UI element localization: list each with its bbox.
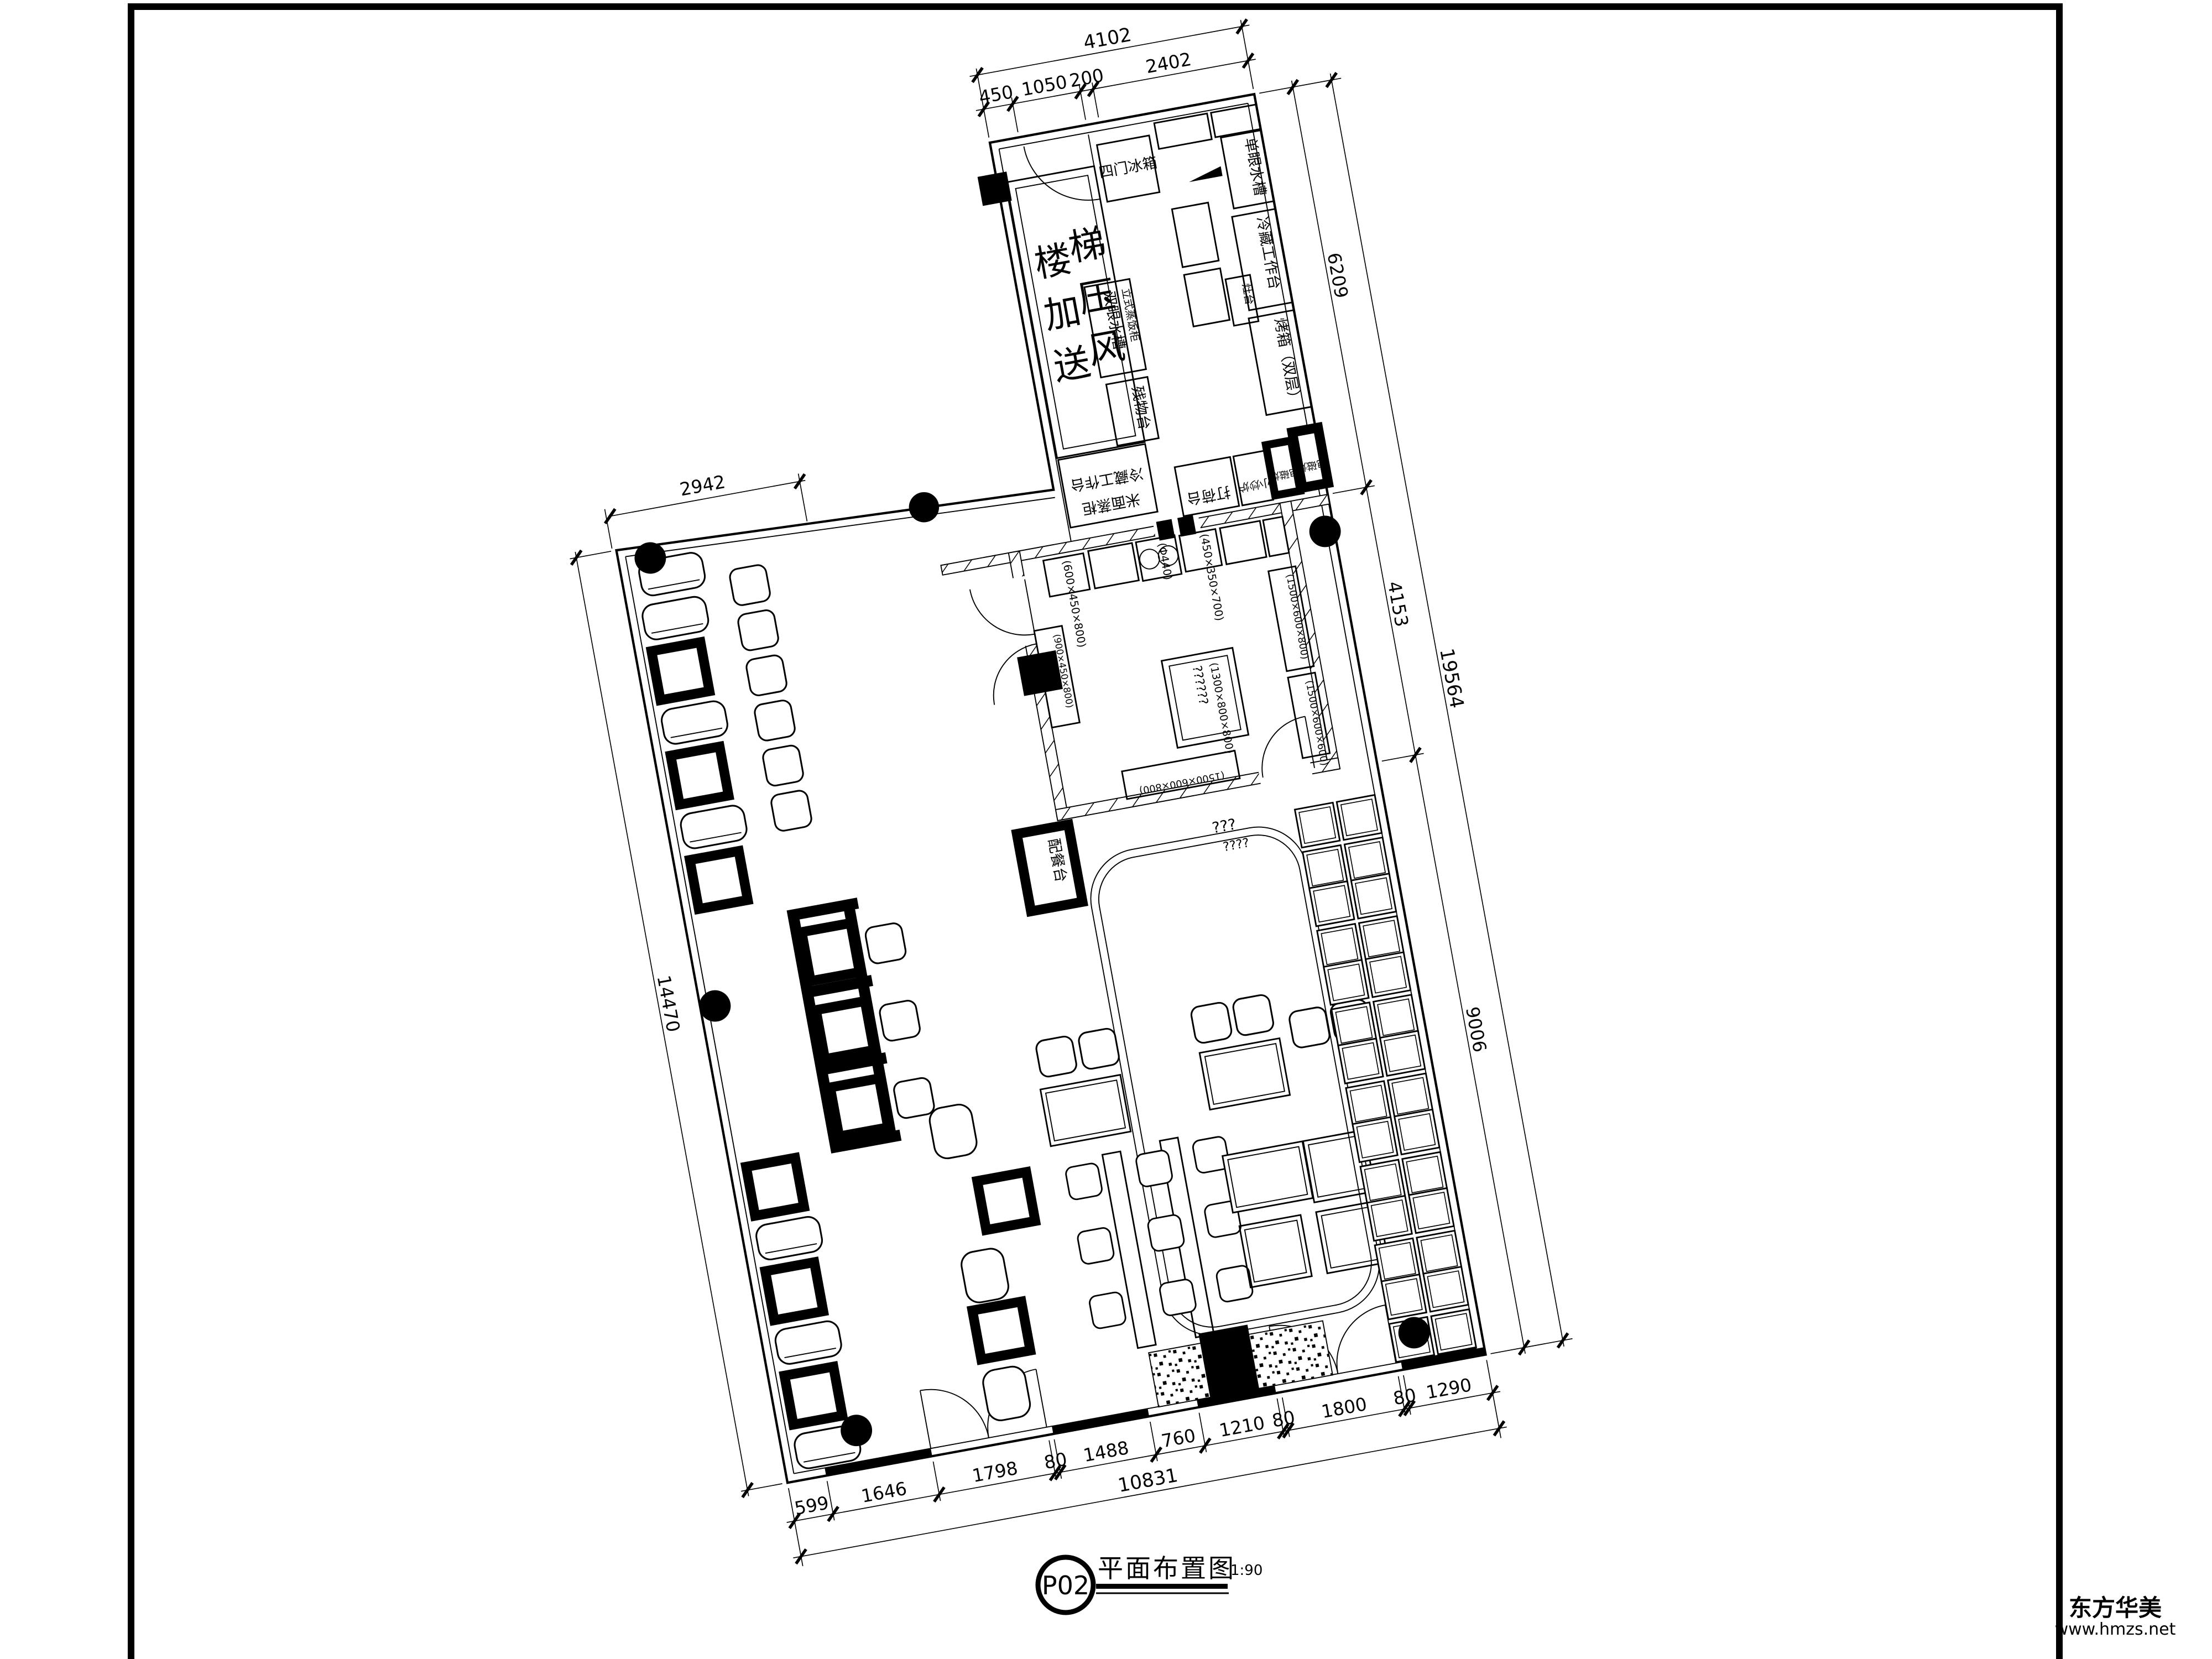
island-table: ?????? (1300×800×800)	[1162, 648, 1251, 763]
dining-right-column	[1295, 795, 1476, 1361]
booth-cluster	[793, 896, 938, 1147]
dim-bottom-80b: 80	[1270, 1407, 1297, 1432]
dim-bottom-1646: 1646	[859, 1478, 908, 1507]
distribution-counter	[1017, 825, 1083, 911]
dim-right-4153: 4153	[1384, 580, 1412, 628]
shaft-char-3: 加	[1041, 289, 1084, 338]
watermark: 东方华美 www.hmzs.net	[2055, 1594, 2176, 1639]
stove-cabinet-label: 灶台	[1240, 283, 1256, 306]
dim-right-total: 19564	[1435, 646, 1468, 710]
dim-bottom-1798: 1798	[971, 1458, 1019, 1486]
dim-top-seg-1050: 1050	[1020, 71, 1068, 100]
double-oven-label: 烤箱（双层）	[1271, 316, 1303, 406]
shaft-char-1: 楼	[1031, 237, 1074, 286]
cold-worktable-left-label: 冷藏工作台	[1069, 464, 1145, 494]
dim-right-9006: 9006	[1462, 1005, 1490, 1053]
title-block: P02 平面布置图 1:90	[1038, 1553, 1262, 1613]
dining-left-wing	[633, 528, 994, 1470]
dim-bottom-1488: 1488	[1082, 1437, 1130, 1466]
sheet-scale: 1:90	[1230, 1562, 1262, 1579]
dim-right-6209: 6209	[1323, 251, 1352, 300]
equip-size-3: (Φ440)	[1155, 542, 1175, 581]
drawing-sheet: 楼 梯 加 压 送 风 四门冰箱 单眼水槽 冷藏工作台 灶台	[0, 0, 2212, 1659]
dim-bottom-80a: 80	[1042, 1448, 1069, 1473]
stirfry-stove-label: 小炒炉	[1238, 476, 1272, 494]
steam-cabinet-label: 米面蒸柜	[1081, 490, 1141, 518]
island-label: ??????	[1190, 665, 1211, 706]
shaft-char-2: 梯	[1065, 221, 1109, 270]
door-swing-marker	[1187, 166, 1223, 182]
dim-bottom-80c: 80	[1391, 1385, 1418, 1410]
dimension-top: 450 1050 200 2402 4102	[966, 2, 1261, 139]
floor-plan-svg: 楼 梯 加 压 送 风 四门冰箱 单眼水槽 冷藏工作台 灶台	[0, 0, 2212, 1659]
waste-table-label: 残物台	[1128, 385, 1153, 431]
four-door-fridge-label: 四门冰箱	[1098, 154, 1159, 182]
sheet-code: P02	[1042, 1571, 1089, 1600]
shaft-char-5: 送	[1050, 340, 1094, 389]
dim-bottom-total: 10831	[1116, 1464, 1180, 1497]
watermark-line2: www.hmzs.net	[2055, 1620, 2176, 1639]
dim-left-side: 14470	[653, 974, 684, 1034]
sheet-title: 平面布置图	[1098, 1553, 1236, 1583]
equip-size-2: (450×350×700)	[1198, 533, 1226, 622]
dim-top-seg-2402: 2402	[1144, 49, 1193, 77]
dim-bottom-1290: 1290	[1425, 1374, 1473, 1403]
dim-bottom-1800: 1800	[1319, 1394, 1368, 1422]
dim-top-total: 4102	[1082, 24, 1133, 54]
island-size: (1300×800×800)	[1207, 661, 1236, 754]
plating-table-label: 打荷台	[1185, 483, 1232, 508]
watermark-line1: 东方华美	[2069, 1594, 2162, 1621]
plan: 楼 梯 加 压 送 风 四门冰箱 单眼水槽 冷藏工作台 灶台	[493, 0, 1599, 1575]
door-opening-bottom	[1258, 760, 1313, 786]
dim-bottom-1210: 1210	[1218, 1412, 1266, 1441]
